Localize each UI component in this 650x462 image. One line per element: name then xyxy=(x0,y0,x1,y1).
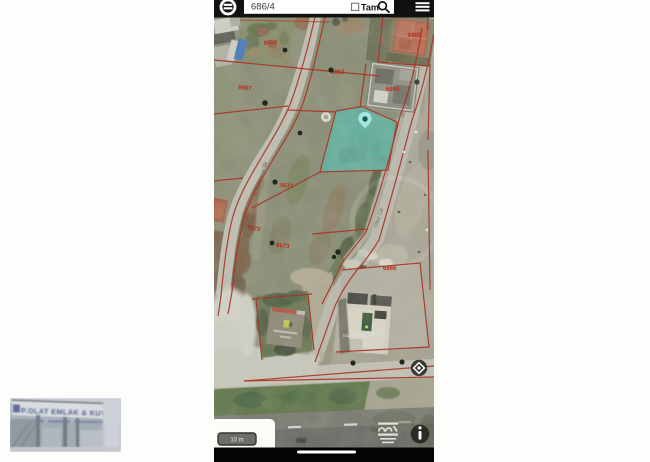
svg-text:6866: 6866 xyxy=(383,266,397,272)
svg-text:10 m: 10 m xyxy=(230,438,243,444)
svg-text:8671: 8671 xyxy=(280,183,294,190)
svg-text:6865: 6865 xyxy=(408,33,422,39)
svg-text:686/4: 686/4 xyxy=(251,2,275,13)
svg-text:8673: 8673 xyxy=(276,243,290,250)
svg-text:6864: 6864 xyxy=(386,87,400,93)
svg-text:Tam: Tam xyxy=(361,3,379,13)
